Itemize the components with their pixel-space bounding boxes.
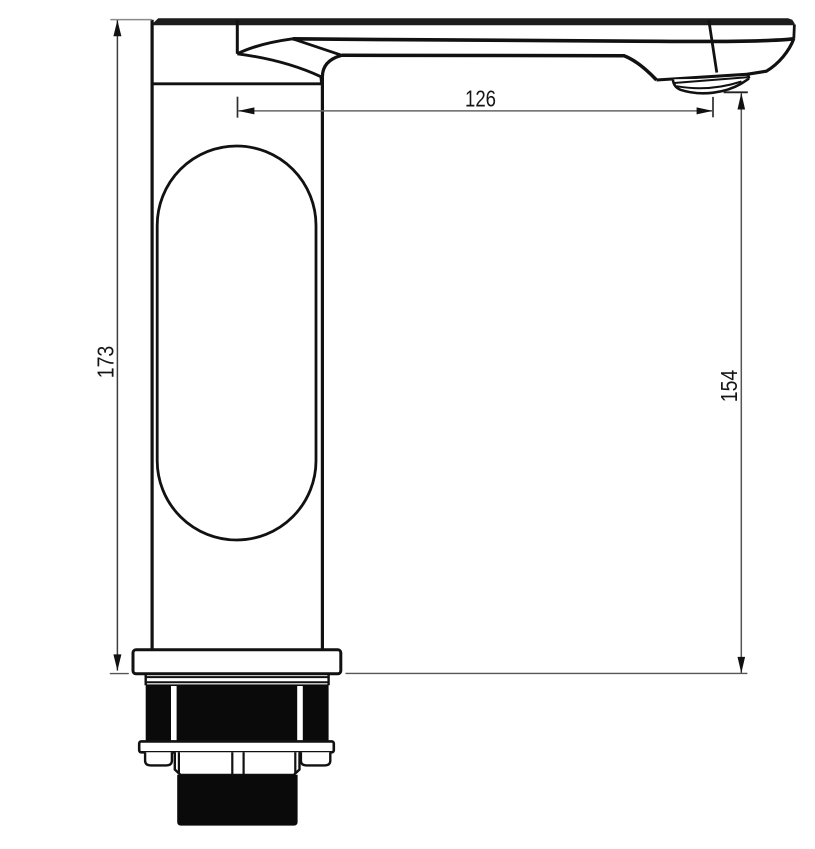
svg-text:173: 173	[92, 346, 118, 379]
svg-text:126: 126	[465, 85, 496, 111]
svg-text:154: 154	[716, 370, 742, 403]
